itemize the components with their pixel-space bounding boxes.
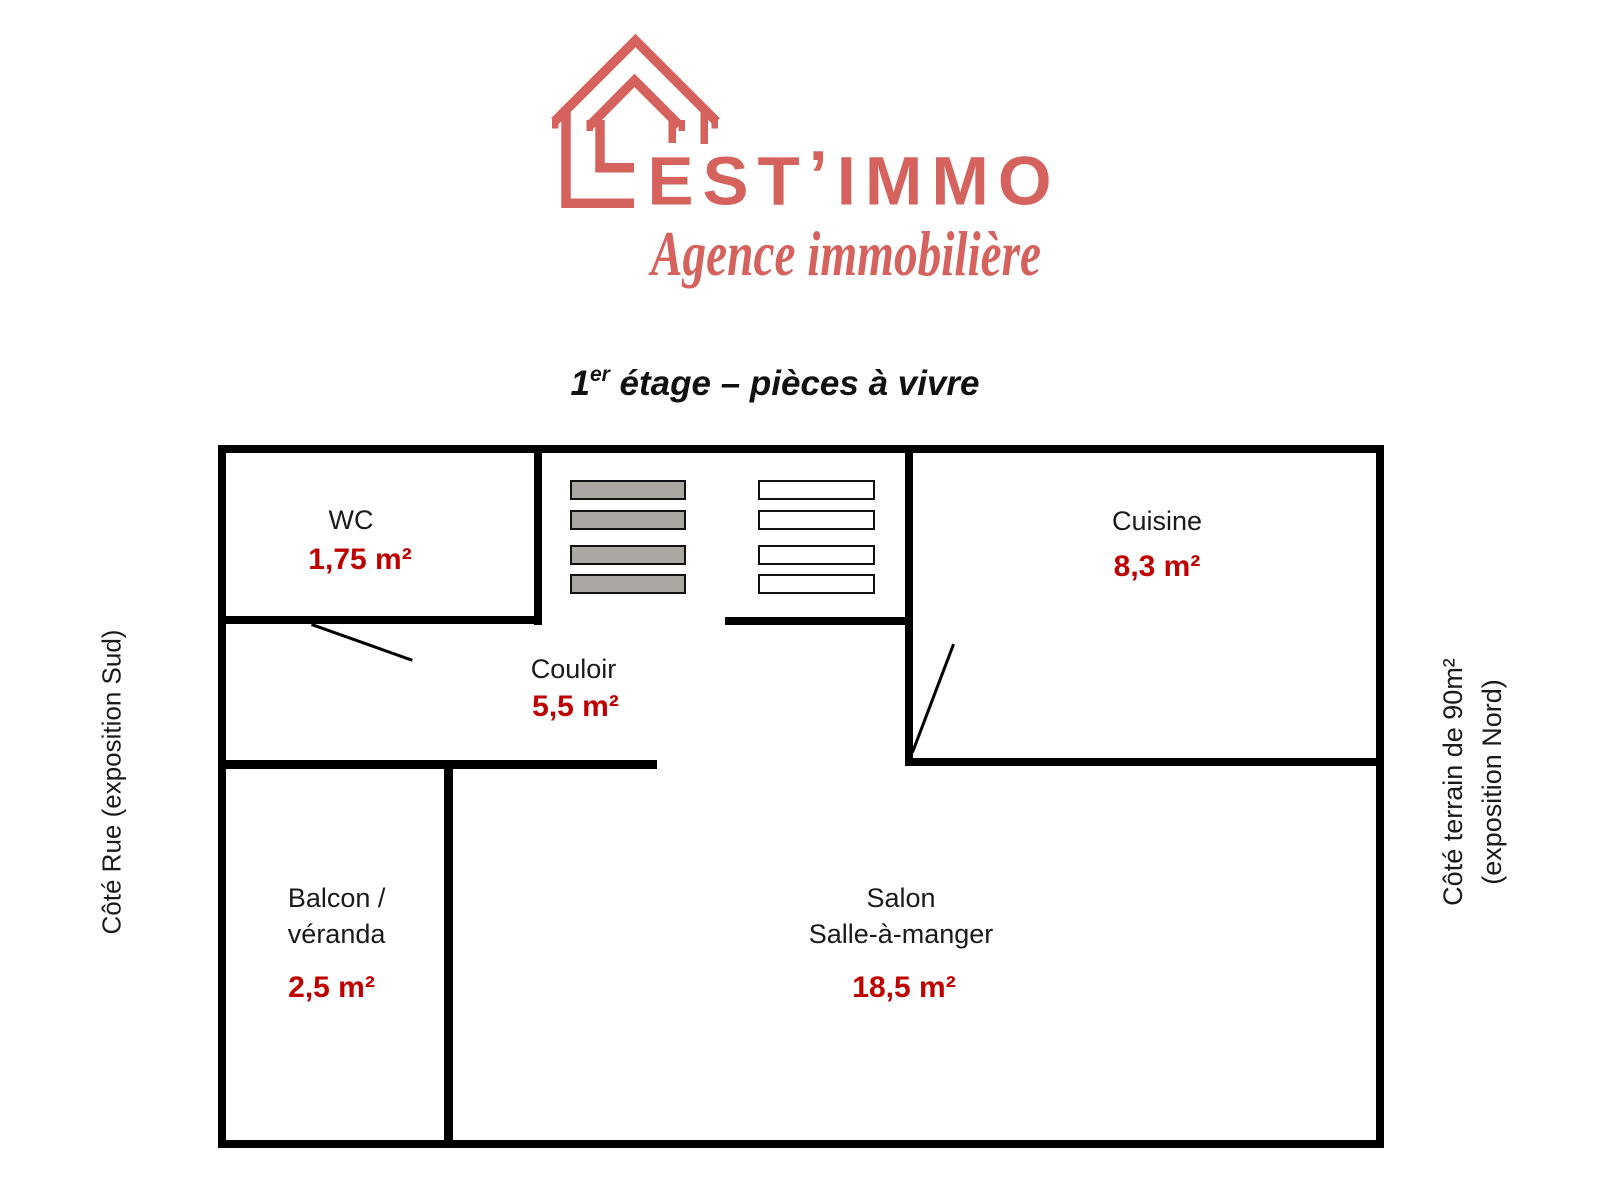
svg-text:EST’IMMO: EST’IMMO [648, 137, 1052, 220]
svg-text:Agence immobilière: Agence immobilière [648, 218, 1041, 289]
